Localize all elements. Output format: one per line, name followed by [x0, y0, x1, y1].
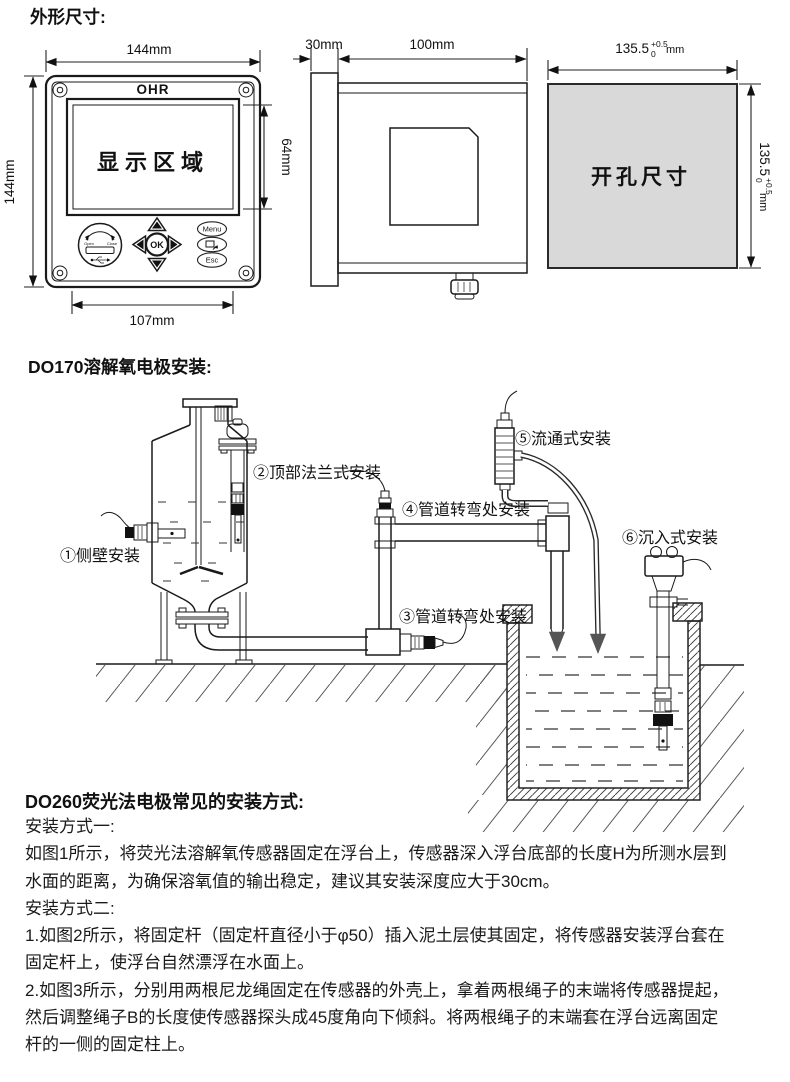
dim-bottom-label: 107mm: [129, 313, 174, 328]
ok-button: OK: [146, 234, 168, 256]
usb-close-label: Close: [107, 241, 118, 246]
bezel: [311, 73, 338, 286]
instruction-line: 1.如图2所示，将固定杆（固定杆直径小于φ50）插入泥土层使其固定，将传感器安装…: [25, 922, 780, 949]
cutout-unit: mm: [757, 193, 769, 211]
instruction-line: 水面的距离，为确保溶氧值的输出稳定，建议其安装深度应大于30cm。: [25, 868, 780, 895]
arrow-down-icon: [149, 259, 166, 272]
dim-display-label: 64mm: [279, 138, 294, 176]
do260-instructions: 安装方式一: 如图1所示，将荧光法溶解氧传感器固定在浮台上，传感器深入浮台底部的…: [25, 813, 780, 1059]
label-side-wall: ①侧壁安装: [60, 546, 140, 565]
ok-label: OK: [150, 240, 164, 250]
pipe-network: [366, 503, 569, 655]
page-switch-icon: [206, 241, 218, 250]
brand-logo: OHR: [137, 82, 170, 97]
instruction-line: 然后调整绳子B的长度使传感器探头成45度角向下倾斜。将两根绳子的末端套在浮台远离…: [25, 1004, 780, 1031]
label-submersible: ⑥沉入式安装: [622, 529, 718, 547]
cable-gland-icon: [451, 273, 478, 299]
stirrer-paddle: [180, 567, 198, 574]
esc-label: Esc: [206, 256, 219, 265]
housing-plate: [390, 128, 478, 225]
arrow-left-icon: [133, 236, 146, 253]
usb-open-label: Open: [84, 241, 94, 246]
section-heading-do260: DO260荧光法电极常见的安装方式:: [25, 788, 304, 814]
housing: [338, 83, 527, 273]
cutout-dim-top: 135.5 +0.5 0 mm: [615, 39, 684, 59]
water-basin: [503, 603, 702, 800]
instruction-line: 安装方式一:: [25, 813, 780, 840]
sensor-side-wall: [101, 512, 185, 542]
cutout-dim-right: 135.5 +0.5 0 mm: [754, 142, 774, 211]
cutout-dim-base: 135.5: [615, 41, 649, 56]
cutout-tol-minus: 0: [754, 178, 764, 183]
usb-icon: [91, 257, 111, 263]
front-panel-drawing: 144mm 144mm OHR 显示区域 64mm: [2, 42, 294, 328]
instruction-line: 如图1所示，将荧光法溶解氧传感器固定在浮台上，传感器深入浮台底部的长度H为所测水…: [25, 840, 780, 867]
dim-width-label: 144mm: [126, 42, 171, 57]
cutout-dim-base: 135.5: [757, 142, 772, 176]
instruction-line: 安装方式二:: [25, 895, 780, 922]
agitator-motor-icon: [215, 406, 232, 421]
page-switch-button: [198, 237, 227, 251]
do170-installation-diagram: ①侧壁安装 ②顶部法兰式安装 ③管道转弯处安装 ④管道转弯处安装 ⑤流通式安装 …: [0, 350, 790, 835]
label-pipe-bend-lower: ③管道转弯处安装: [399, 608, 527, 626]
corner-screw-icon: [53, 83, 253, 280]
menu-label: Menu: [203, 225, 222, 234]
menu-button: Menu: [198, 222, 227, 236]
instruction-line: 杆的一侧的固定柱上。: [25, 1031, 780, 1058]
cutout-drawing: 135.5 +0.5 0 mm 开孔尺寸 135.5 +0.5 0 mm: [548, 39, 774, 268]
dim-height-label: 144mm: [2, 159, 17, 204]
esc-button: Esc: [198, 253, 227, 267]
usb-port: Open Close: [79, 224, 122, 267]
reactor-tank: [152, 399, 368, 664]
panel-inner-frame: [52, 82, 254, 281]
label-top-flange: ②顶部法兰式安装: [253, 464, 381, 482]
dim-depth-label: 100mm: [409, 37, 454, 52]
sensor-cable: [683, 559, 711, 570]
cutout-unit: mm: [666, 44, 684, 56]
sensor-cable: [505, 391, 517, 413]
instruction-line: 固定杆上，使浮台自然漂浮在水面上。: [25, 949, 780, 976]
label-flow-through: ⑤流通式安装: [515, 430, 611, 448]
cutout-label: 开孔尺寸: [591, 165, 691, 189]
display-area-label: 显示区域: [97, 150, 209, 175]
instruction-line: 2.如图3所示，分别用两根尼龙绳固定在传感器的外壳上，拿着两根绳子的末端将传感器…: [25, 977, 780, 1004]
sensor-top-flange: [219, 419, 256, 552]
open-close-arc-icon: [86, 232, 114, 240]
arrow-right-icon: [169, 236, 182, 253]
cutout-tol-minus: 0: [651, 49, 656, 59]
side-view-drawing: 30mm 100mm: [293, 37, 527, 299]
arrow-up-icon: [149, 218, 166, 231]
page: 外形尺寸: 144mm 144mm OHR 显示区: [0, 0, 790, 1082]
outline-dimensions-drawing: 144mm 144mm OHR 显示区域 64mm: [0, 0, 790, 345]
label-pipe-bend-upper: ④管道转弯处安装: [402, 501, 530, 519]
